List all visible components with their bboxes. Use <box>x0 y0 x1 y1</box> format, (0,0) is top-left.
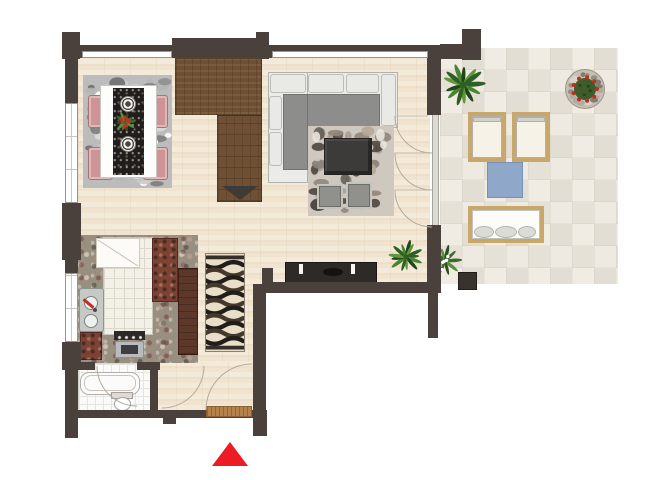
wall-right-top <box>427 45 441 115</box>
blue-mat <box>487 162 523 198</box>
wall-doorway-jamb <box>262 268 273 282</box>
decor-bowl <box>323 268 343 276</box>
pillar-bottom-left <box>65 410 78 433</box>
wall-right-bottom <box>427 225 441 293</box>
pillar-top-mid <box>256 32 269 59</box>
terrace-corner-step <box>440 44 462 59</box>
window-left-2 <box>65 273 78 342</box>
pillar-bottom-mid <box>163 418 176 424</box>
pouf <box>346 182 372 209</box>
pillar-bottom-right <box>253 410 267 436</box>
entrance-arrow-marker <box>212 442 248 466</box>
wall-right-stub <box>428 293 438 338</box>
doormat <box>206 406 252 417</box>
palm-plant <box>440 62 486 108</box>
window-top-1 <box>82 51 172 58</box>
window-left-1 <box>65 103 78 203</box>
lounger-headrest <box>517 117 545 122</box>
coffee-table <box>324 138 372 175</box>
wall-bathroom-divider <box>150 370 158 412</box>
round-planter <box>565 69 605 109</box>
kitchen-cabinet <box>152 238 178 302</box>
oven-window <box>121 345 138 354</box>
pouf <box>317 184 343 209</box>
sofa-chaise-cushion <box>269 132 282 166</box>
sink-basin <box>84 314 98 328</box>
table-centerpiece-plant <box>114 111 136 133</box>
staircase-run <box>217 115 262 202</box>
sofa-chaise-seat <box>283 94 308 170</box>
kitchen-cabinet <box>80 332 102 360</box>
window-top-2 <box>272 51 428 58</box>
sink-faucet <box>93 308 97 312</box>
palm-plant <box>388 240 424 274</box>
wall-living-bottom <box>262 282 440 293</box>
sofa-back-cushion <box>308 74 344 93</box>
sofa-chaise-cushion <box>269 96 282 130</box>
stove-cooktop <box>114 331 145 340</box>
bench-pillow <box>474 226 494 238</box>
wall-top-thick <box>172 38 268 46</box>
terrace-corner-pillar <box>462 29 481 60</box>
staircase-upper <box>175 58 262 115</box>
floor-plan <box>0 0 650 480</box>
wall-bathroom-top-a <box>65 362 95 370</box>
bathtub-basin <box>84 375 136 391</box>
wall-left-upper <box>65 45 78 103</box>
candlestick <box>299 264 303 274</box>
sofa-back-cushion <box>270 74 306 93</box>
candlestick <box>351 264 355 274</box>
wave-shelf-unit <box>205 253 245 352</box>
sofa-armrest <box>381 74 396 126</box>
bench-pillow <box>518 226 536 238</box>
kitchen-door-swing-area <box>96 238 140 268</box>
toilet-bowl <box>114 397 131 411</box>
lounger-headrest <box>473 117 501 122</box>
sofa-back-cushion <box>346 74 379 93</box>
wall-hall-right <box>253 284 266 410</box>
pillar-left-mid <box>62 203 81 260</box>
wall-bathroom-top-b <box>137 362 160 370</box>
floor-hallway <box>150 362 266 412</box>
plate <box>120 136 136 152</box>
plate <box>120 96 136 112</box>
terrace-door-track <box>432 115 439 225</box>
bench-pillow <box>495 226 517 238</box>
kitchen-cabinet-tall <box>178 268 198 355</box>
